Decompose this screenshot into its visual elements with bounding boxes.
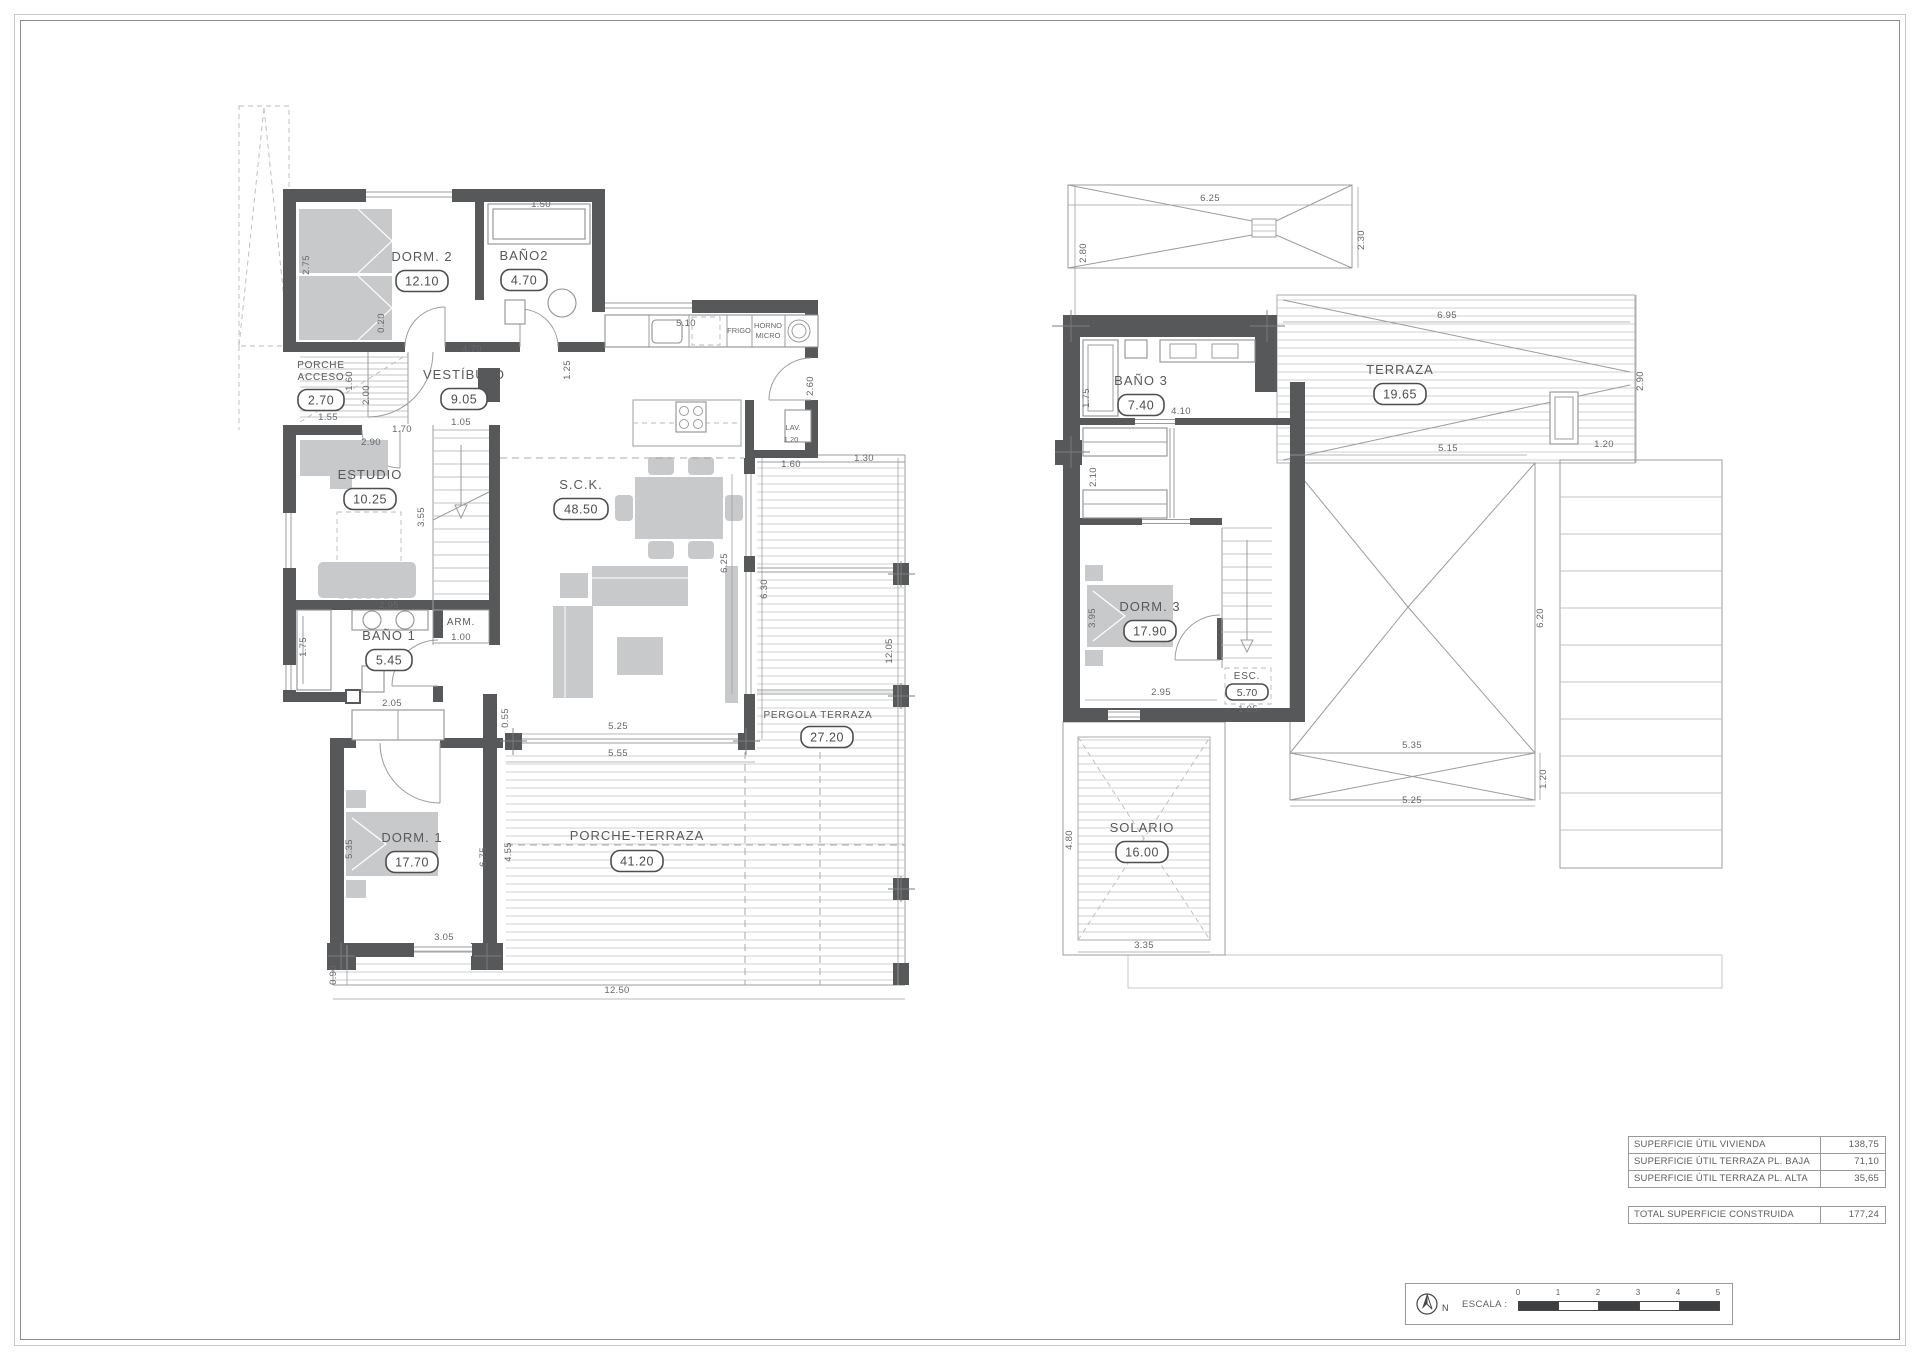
dim-text: 4.10 — [1171, 406, 1191, 417]
appliance-label-oven: HORNO — [754, 321, 782, 330]
dim-text: 2.10 — [1088, 467, 1099, 487]
total-area-table: TOTAL SUPERFICIE CONSTRUIDA 177,24 — [1628, 1206, 1886, 1224]
plot-boundary-dashed — [239, 106, 289, 430]
table-row: SUPERFICIE ÚTIL TERRAZA PL. ALTA 35,65 — [1629, 1171, 1885, 1187]
room-label-porche-acceso-1: PORCHE — [297, 360, 345, 371]
dim-text: 2.95 — [379, 600, 399, 611]
appliance-label-micro: MICRO — [756, 331, 781, 340]
dim-text: 4.70 — [462, 344, 482, 355]
room-area-estudio: 10.25 — [353, 493, 387, 507]
dim-text: 1.30 — [854, 453, 874, 464]
table-total-label: TOTAL SUPERFICIE CONSTRUIDA — [1629, 1207, 1821, 1223]
dim-text: 0.55 — [500, 708, 511, 728]
dim-text: 1.60 — [344, 371, 355, 391]
scale-tick: 5 — [1716, 1288, 1720, 1297]
room-label-solario: SOLARIO — [1110, 820, 1175, 835]
room-area-bano2: 4.70 — [511, 274, 537, 288]
room-label-porche-acceso-2: ACCESO — [297, 372, 344, 383]
dim-text: 3.95 — [1087, 608, 1098, 628]
room-label-porche-terraza: PORCHE-TERRAZA — [570, 828, 705, 843]
dim-text: 5.25 — [1402, 795, 1422, 806]
scale-tick: 0 — [1516, 1288, 1520, 1297]
room-area-dorm1: 17.70 — [395, 856, 429, 870]
dim-text: 0.90 — [328, 965, 339, 985]
table-row: TOTAL SUPERFICIE CONSTRUIDA 177,24 — [1629, 1207, 1885, 1223]
dim-text: 1.25 — [562, 360, 573, 380]
table-row-value: 35,65 — [1821, 1171, 1885, 1187]
dim-text: 6.25 — [719, 553, 730, 573]
upper-floor-plan: BAÑO 3 7.40 TERRAZA 19.65 DORM. 3 17.90 … — [1052, 185, 1722, 988]
dim-text: 1.60 — [781, 459, 801, 470]
dim-text: 2.90 — [1635, 371, 1646, 391]
dim-text: 2.30 — [1356, 230, 1367, 250]
dim-text: 2.05 — [382, 698, 402, 709]
table-row-value: 138,75 — [1821, 1137, 1885, 1153]
dim-text: 5.35 — [344, 839, 355, 859]
upper-fixtures — [1083, 340, 1255, 518]
dim-text: 4.80 — [1064, 830, 1075, 850]
ground-floor-plan: DORM. 2 12.10 BAÑO2 4.70 VESTÍBULO 9.05 … — [239, 106, 915, 999]
room-label-sck: S.C.K. — [559, 477, 603, 492]
dim-text: 6.20 — [1535, 608, 1546, 628]
dim-text: 4.55 — [503, 842, 514, 862]
north-arrow-icon — [1414, 1291, 1440, 1317]
dim-text: 1.20 — [1538, 769, 1549, 789]
dim-text: 2.95 — [1151, 687, 1171, 698]
room-label-bano1: BAÑO 1 — [362, 628, 416, 643]
dim-text: 5.10 — [676, 318, 696, 329]
dim-text: 2.00 — [361, 385, 372, 405]
room-label-esc: ESC. — [1234, 671, 1261, 682]
scale-ruler — [1518, 1301, 1720, 1311]
upper-windows — [1108, 420, 1190, 721]
dim-text: 2.80 — [1078, 243, 1089, 263]
scale-tick: 1 — [1556, 1288, 1560, 1297]
dim-text: 3.35 — [1134, 940, 1154, 951]
dim-text: 6.30 — [759, 579, 770, 599]
room-area-dorm3: 17.90 — [1133, 625, 1167, 639]
table-row-label: SUPERFICIE ÚTIL TERRAZA PL. BAJA — [1629, 1154, 1821, 1170]
dim-text: 2.75 — [301, 255, 312, 275]
scale-segment — [1639, 1302, 1680, 1310]
scale-tick-numbers: 0 1 2 3 4 5 — [1518, 1288, 1718, 1298]
room-area-sck: 48.50 — [564, 503, 598, 517]
room-label-dorm3: DORM. 3 — [1119, 599, 1180, 614]
scale-segment — [1599, 1302, 1638, 1310]
room-label-estudio: ESTUDIO — [338, 467, 403, 482]
scale-bar: N ESCALA : 0 1 2 3 4 5 — [1405, 1283, 1733, 1325]
room-area-esc: 5.70 — [1237, 687, 1258, 699]
room-label-dorm2: DORM. 2 — [391, 249, 452, 264]
table-total-value: 177,24 — [1821, 1207, 1885, 1223]
dim-text: 6.75 — [478, 847, 489, 867]
room-area-porche-acceso: 2.70 — [308, 394, 334, 408]
room-area-porche-terraza: 41.20 — [620, 855, 654, 869]
scale-tick: 3 — [1636, 1288, 1640, 1297]
upper-furniture — [1085, 565, 1173, 666]
room-area-bano1: 5.45 — [376, 654, 402, 668]
dim-text: 12.50 — [604, 985, 629, 996]
room-label-pergola-terraza: PERGOLA TERRAZA — [763, 710, 872, 721]
scale-tick: 2 — [1596, 1288, 1600, 1297]
dim-text: 1.00 — [451, 632, 471, 643]
room-area-terraza: 19.65 — [1383, 388, 1417, 402]
dim-text: 1.20 — [1594, 439, 1614, 450]
table-row-value: 71,10 — [1821, 1154, 1885, 1170]
room-label-dorm1: DORM. 1 — [381, 830, 442, 845]
table-row-label: SUPERFICIE ÚTIL TERRAZA PL. ALTA — [1629, 1171, 1821, 1187]
room-label-bano2: BAÑO2 — [499, 248, 548, 263]
dim-text: 1.50 — [531, 199, 551, 210]
floorplan-sheet: { "ground_floor": { "rooms": [ {"name": … — [0, 0, 1920, 1360]
dim-text: 12.05 — [884, 638, 895, 663]
dim-text: 0.20 — [376, 313, 387, 333]
room-area-bano3: 7.40 — [1128, 399, 1154, 413]
dim-text: 1.70 — [392, 424, 412, 435]
dim-text: 5.25 — [608, 721, 628, 732]
room-label-lav: LAV. — [785, 423, 800, 432]
room-label-arm: ARM. — [447, 617, 475, 628]
dim-text: 1.05 — [451, 417, 471, 428]
scale-tick: 4 — [1676, 1288, 1680, 1297]
dim-text: 2.90 — [361, 437, 381, 448]
dim-text: 6.25 — [1200, 193, 1220, 204]
scale-segment — [1680, 1302, 1719, 1310]
table-row: SUPERFICIE ÚTIL TERRAZA PL. BAJA 71,10 — [1629, 1154, 1885, 1171]
dim-text: 1.05 — [1238, 704, 1258, 715]
appliance-label-fridge: FRIGO — [727, 326, 751, 335]
scale-label: ESCALA : — [1462, 1299, 1507, 1310]
area-summary-table: SUPERFICIE ÚTIL VIVIENDA 138,75 SUPERFIC… — [1628, 1136, 1886, 1188]
scale-segment — [1519, 1302, 1558, 1310]
dim-text: 3.05 — [434, 932, 454, 943]
table-row-label: SUPERFICIE ÚTIL VIVIENDA — [1629, 1137, 1821, 1153]
dim-text: 1.55 — [318, 412, 338, 423]
room-area-vestibulo: 9.05 — [451, 393, 477, 407]
dim-text: 5.55 — [608, 748, 628, 759]
dim-text: 5.35 — [1402, 740, 1422, 751]
upper-solario — [1063, 722, 1225, 955]
room-area-pergola-terraza: 27.20 — [810, 731, 844, 745]
dim-text: 3.55 — [416, 507, 427, 527]
dim-text: 1.75 — [1081, 388, 1092, 408]
dim-text: 2.60 — [805, 376, 816, 396]
dim-text: 6.95 — [1437, 310, 1457, 321]
dim-text: 5.15 — [1438, 443, 1458, 454]
room-label-vestibulo: VESTÍBULO — [423, 367, 505, 382]
room-label-bano3: BAÑO 3 — [1114, 373, 1168, 388]
dim-text: 1.75 — [298, 637, 309, 657]
scale-segment — [1558, 1302, 1599, 1310]
room-area-lav: 1.20 — [784, 435, 799, 444]
north-label: N — [1442, 1303, 1449, 1313]
room-label-terraza: TERRAZA — [1366, 362, 1434, 377]
room-area-dorm2: 12.10 — [405, 275, 439, 289]
room-area-solario: 16.00 — [1125, 846, 1159, 860]
table-row: SUPERFICIE ÚTIL VIVIENDA 138,75 — [1629, 1137, 1885, 1154]
